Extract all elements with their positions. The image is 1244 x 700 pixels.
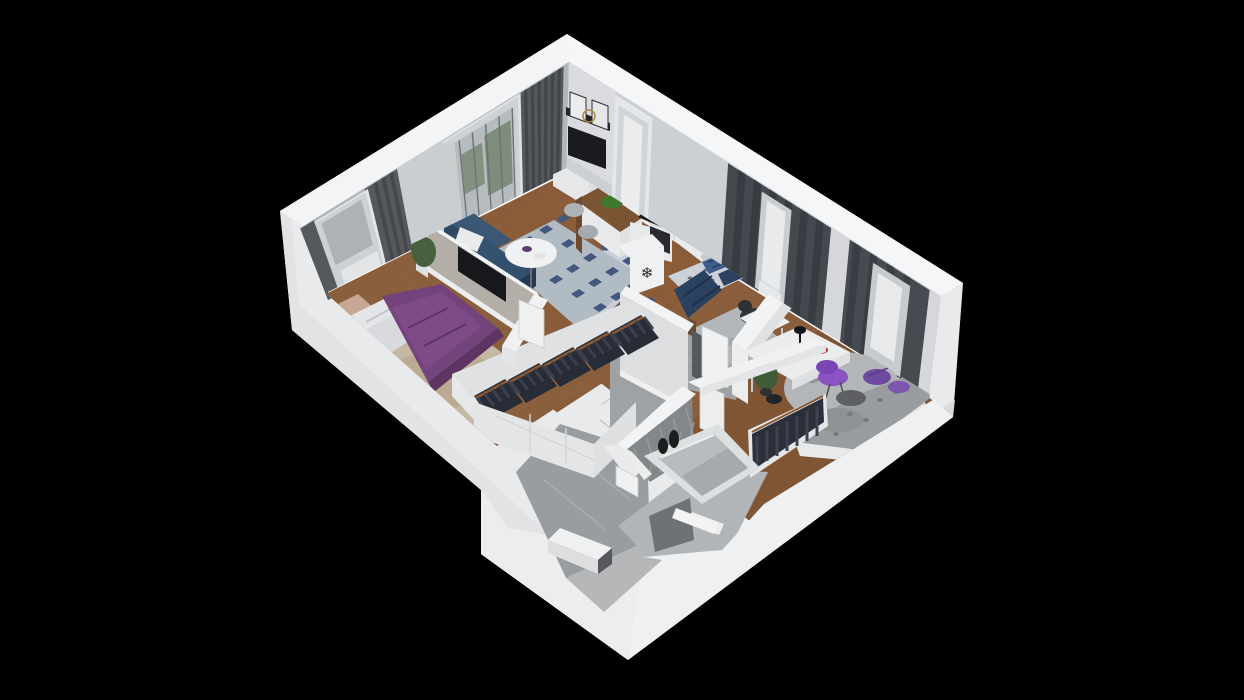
- svg-text:❄: ❄: [641, 265, 654, 282]
